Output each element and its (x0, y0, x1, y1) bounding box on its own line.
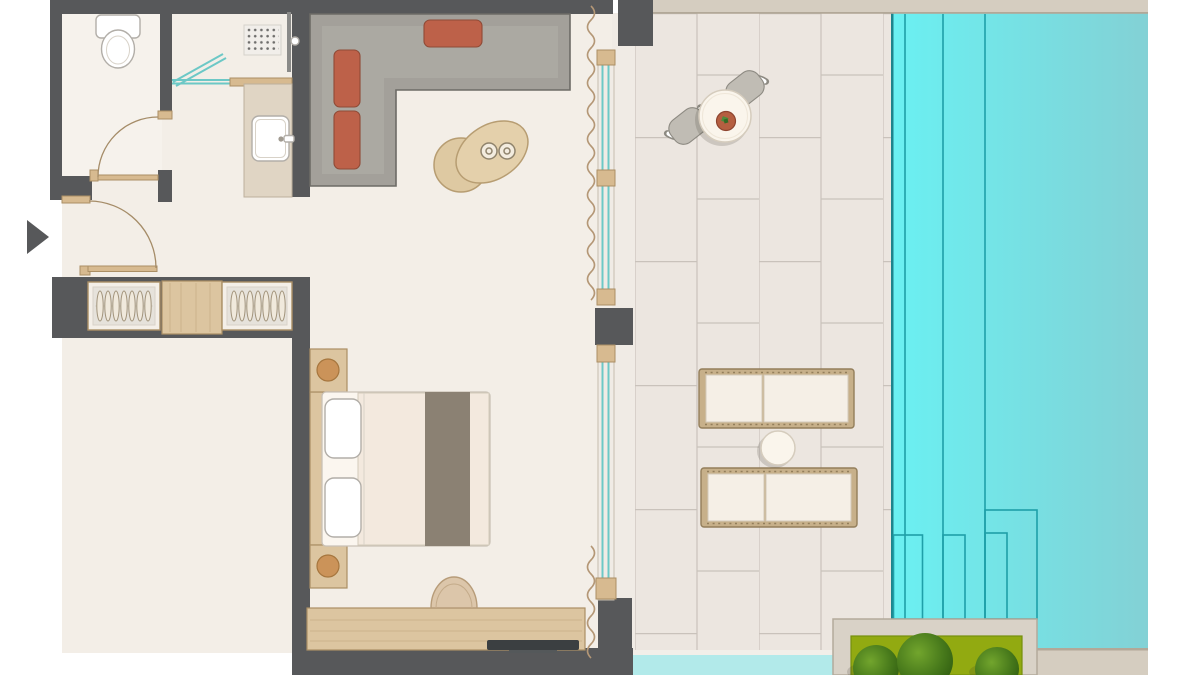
floor-plan-page (0, 0, 1200, 675)
headboard-panel (310, 392, 323, 545)
pool-edge-line (891, 13, 894, 620)
sofa-cushion (334, 111, 360, 169)
entry-jamb-top (62, 196, 90, 203)
nightstand-top (310, 349, 347, 392)
wall-pier-middle (595, 308, 633, 345)
vanity (244, 84, 294, 197)
water-channel (633, 655, 833, 675)
wall-pier-bottom (598, 598, 632, 675)
shower-dots (246, 27, 279, 53)
wall-top (50, 0, 613, 14)
pillow (325, 399, 361, 458)
sun-lounger (701, 468, 857, 527)
wall-toilet-right (160, 13, 172, 113)
side-table (761, 431, 795, 465)
wardrobe (88, 281, 292, 334)
sun-lounger (699, 369, 854, 428)
sliding-door-bedroom (596, 345, 616, 600)
wall-left-upper (50, 0, 62, 200)
top-parapet (635, 0, 1148, 12)
bottom-deck (1037, 651, 1148, 675)
vanity-faucet (278, 136, 283, 141)
sliding-door-living (597, 50, 615, 305)
top-parapet-shadow (635, 12, 1148, 14)
terrace-tile-pattern (635, 13, 893, 675)
pool (891, 13, 1148, 650)
wardrobe-middle-shelf (162, 281, 222, 334)
sofa-cushion (334, 50, 360, 107)
vanity-faucet-handle (284, 136, 294, 143)
planter (833, 619, 1037, 675)
toilet-door-jamb (90, 170, 98, 181)
terrace (612, 13, 893, 675)
toilet-door-jamb2 (158, 111, 172, 119)
bed-runner (425, 392, 470, 546)
shower-glass-panel (287, 12, 291, 72)
shower-control (291, 37, 299, 45)
pillow (325, 478, 361, 537)
wardrobe-section-left (88, 282, 160, 330)
wall-bedroom-bottom (292, 648, 633, 675)
wall-toilet-bottom (158, 170, 172, 202)
nightstand-bottom (310, 545, 347, 588)
pool-water (893, 13, 1148, 650)
floor-plan-drawing (0, 0, 1200, 675)
wall-pier-top-right (618, 0, 653, 46)
toilet-door-leaf (98, 175, 158, 180)
entry-door-leaf (88, 266, 157, 272)
wardrobe-section-right (222, 282, 292, 330)
sofa-cushion (424, 20, 482, 47)
tv (487, 640, 579, 650)
bottom-deck-shadow (1037, 648, 1148, 651)
water-channel-lip (633, 650, 833, 655)
